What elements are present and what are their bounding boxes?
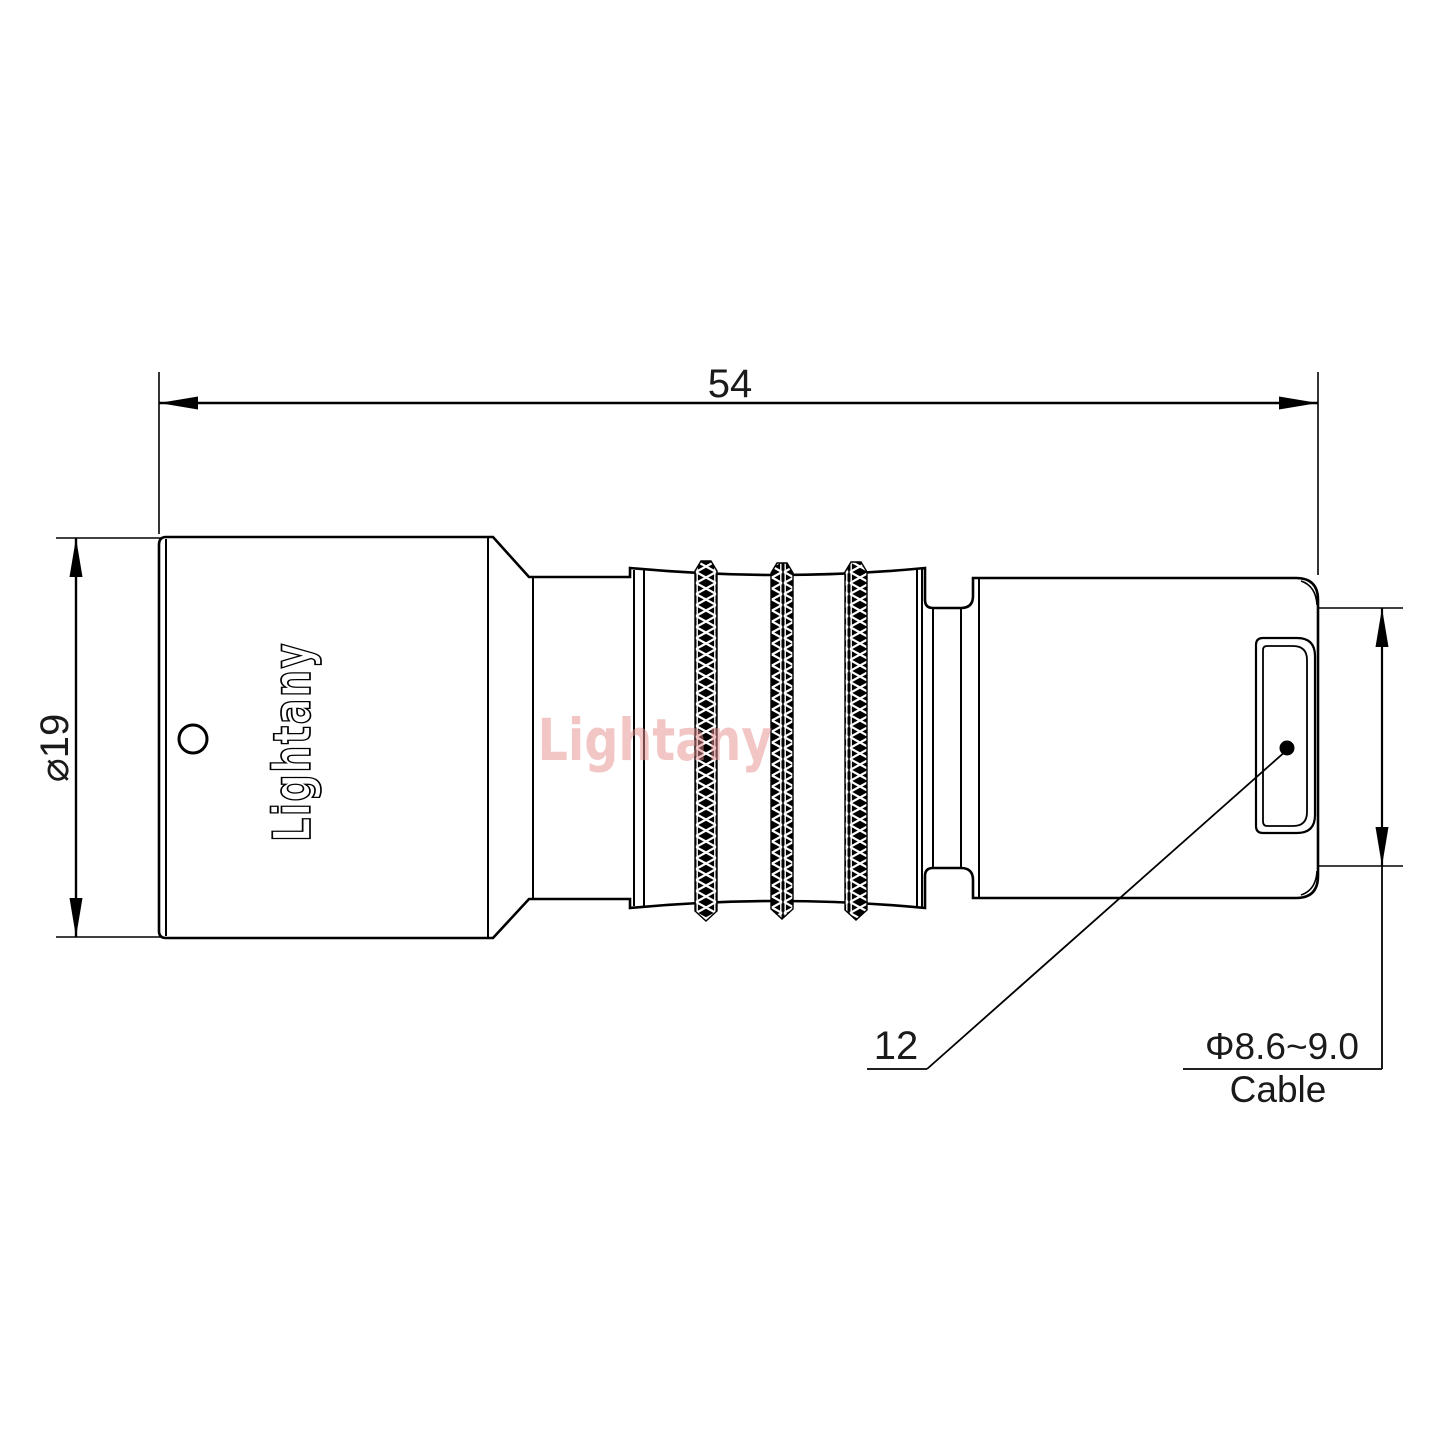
leader-dot — [1280, 741, 1295, 756]
panel-hole — [179, 725, 207, 753]
knurl-band — [845, 562, 867, 920]
technical-drawing-page: Lightany Lightany 54 ⌀19 — [0, 0, 1440, 1440]
dim-rear-label: 12 — [874, 1024, 919, 1068]
label-rear-diameter: 12 — [867, 741, 1295, 1070]
arrowhead-up — [1376, 608, 1389, 647]
leader-line — [927, 750, 1287, 1069]
dim-diameter-label: ⌀19 — [33, 714, 77, 783]
arrowhead-down — [70, 898, 83, 937]
dimension-overall-length: 54 — [159, 362, 1318, 575]
dimension-rear-section — [1318, 608, 1403, 1069]
arrowhead-left — [159, 397, 198, 410]
label-cable-spec: Φ8.6~9.0 Cable — [1183, 1026, 1382, 1110]
cable-word-label: Cable — [1230, 1069, 1327, 1110]
arrowhead-down — [1376, 827, 1389, 866]
connector-technical-drawing: Lightany Lightany 54 ⌀19 — [0, 0, 1440, 1440]
logo-engraving: Lightany — [263, 642, 323, 842]
cable-boot-inner — [1263, 646, 1307, 826]
arrowhead-up — [70, 538, 83, 577]
knurl-band — [771, 563, 793, 919]
cable-spec-label: Φ8.6~9.0 — [1205, 1026, 1359, 1067]
dimension-body-diameter: ⌀19 — [33, 538, 162, 937]
watermark: Lightany — [538, 706, 773, 774]
dim-length-label: 54 — [708, 362, 753, 406]
arrowhead-right — [1279, 397, 1318, 410]
